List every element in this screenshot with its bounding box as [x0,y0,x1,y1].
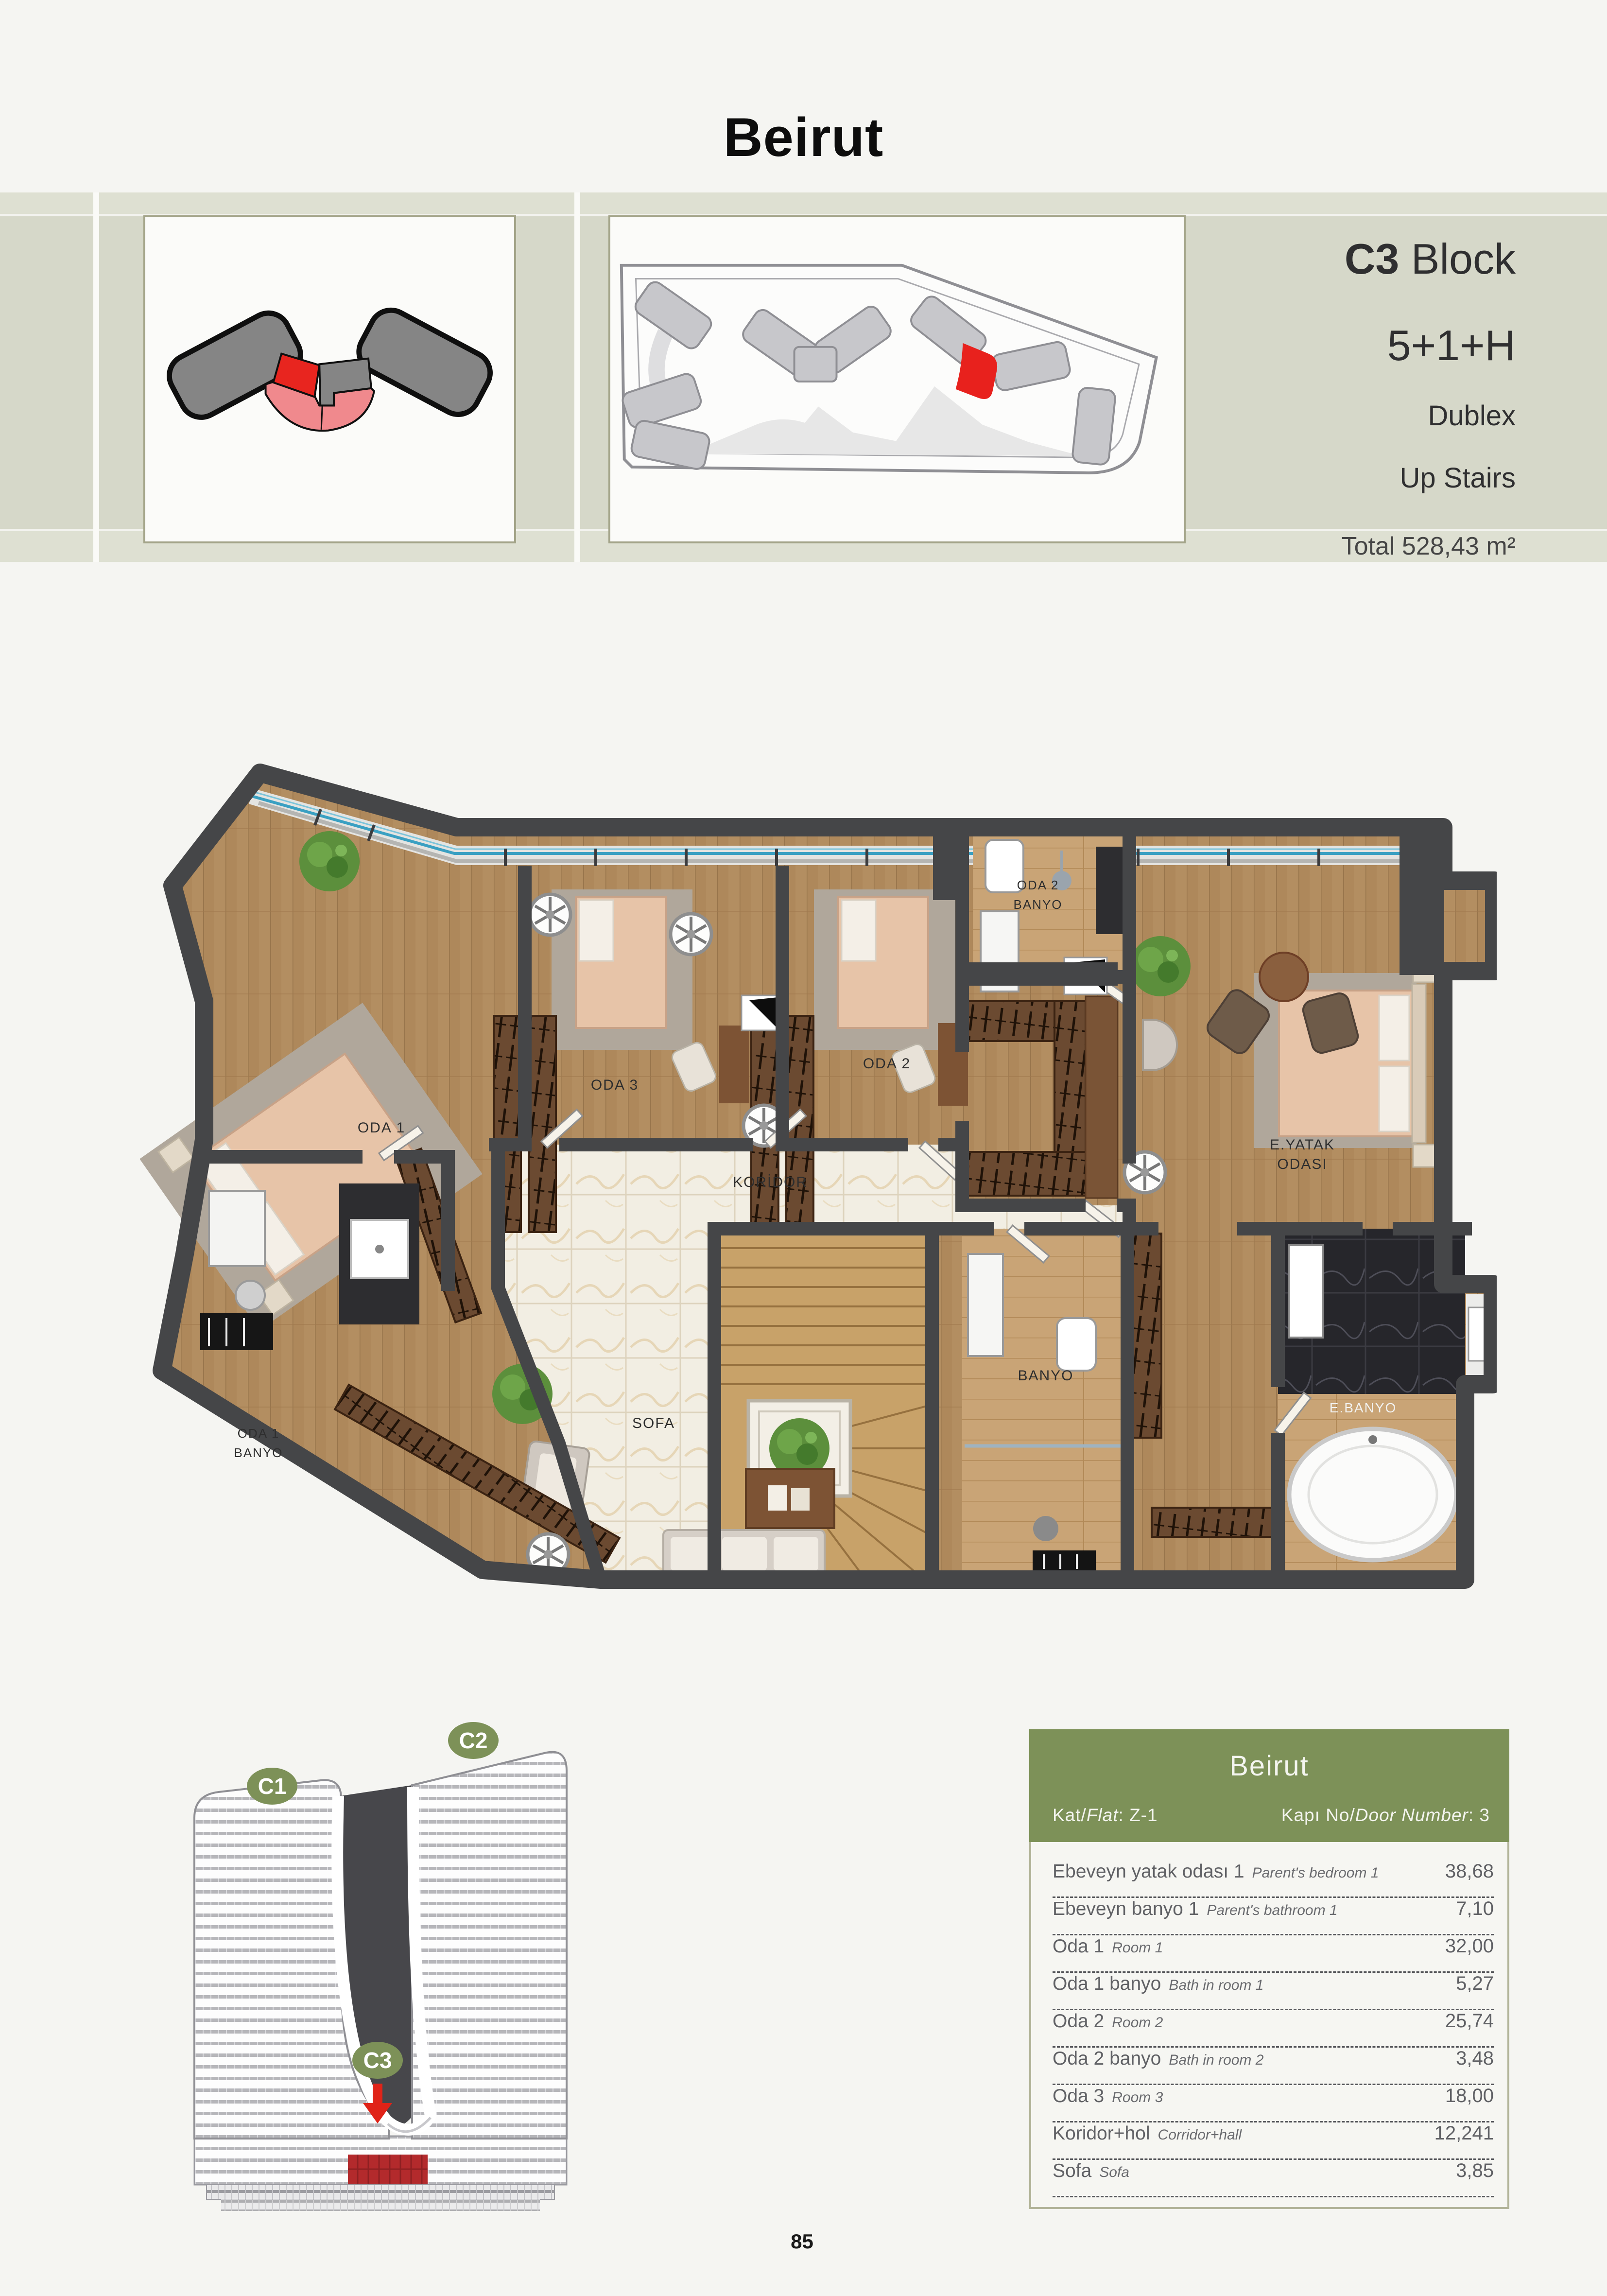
building-elevation: C1 C2 C3 [160,1650,598,2258]
svg-text:C3: C3 [363,2048,392,2073]
room-label-oda1: ODA 1 [358,1120,405,1136]
table-row: SofaSofa3,85 [1053,2160,1494,2197]
svg-text:ODASI: ODASI [1277,1156,1327,1172]
room-label-oda1-banyo: ODA 1 [238,1426,280,1441]
unit-style: Dublex [1428,400,1516,432]
door-info: Kapı No/Door Number: 3 [1281,1805,1490,1826]
room-label-ebanyo: E.BANYO [1330,1400,1397,1415]
table-row: Ebeveyn banyo 1Parent's bathroom 17,10 [1053,1898,1494,1935]
area-table: Beirut Kat/Flat: Z-1 Kapı No/Door Number… [1029,1729,1509,2209]
area-table-subheader: Kat/Flat: Z-1 Kapı No/Door Number: 3 [1053,1805,1490,1826]
room-label-sofa: SOFA [632,1415,675,1431]
flat-info: Kat/Flat: Z-1 [1053,1805,1158,1826]
table-row: Koridor+holCorridor+hall12,241 [1053,2122,1494,2160]
site-plan-diagram [610,217,1184,541]
tower-c2 [412,1752,567,2139]
block-section-panel [143,215,516,543]
block-word: Block [1399,235,1516,283]
block-name: C3 Block [1345,234,1516,284]
table-row: Oda 2 banyoBath in room 23,48 [1053,2048,1494,2085]
plant [1130,936,1191,996]
room-label-oda3: ODA 3 [591,1077,639,1093]
svg-text:BANYO: BANYO [1013,897,1062,912]
site-plan-panel [608,215,1186,543]
plant [299,831,360,891]
block-divider-line [321,405,322,429]
area-table-body: Ebeveyn yatak odası 1Parent's bedroom 13… [1029,1842,1509,2209]
ceiling-fan [671,914,711,955]
building-plinth-2 [221,2199,540,2211]
room-label-oda2: ODA 2 [863,1056,911,1072]
block-wing-right [351,303,497,422]
band-vertical-divider [574,192,580,562]
band-vertical-divider [93,192,99,562]
table-row: Ebeveyn yatak odası 1Parent's bedroom 13… [1053,1861,1494,1898]
svg-text:BANYO: BANYO [234,1445,283,1460]
unit-type: 5+1+H [1387,321,1516,370]
room-label-banyo: BANYO [1018,1368,1073,1384]
page-title: Beirut [0,106,1607,169]
header-band-top-strip [0,192,1607,214]
unit-level: Up Stairs [1400,462,1516,494]
svg-text:C1: C1 [258,1774,287,1799]
building-plinth [207,2185,554,2199]
table-row: Oda 1Room 132,00 [1053,1935,1494,1973]
block-code: C3 [1345,235,1400,283]
area-table-title: Beirut [1029,1750,1509,1782]
closet-back-panel [1086,996,1118,1198]
table-row: Oda 2Room 225,74 [1053,2010,1494,2048]
page-number: 85 [0,2230,1604,2253]
ceiling-fan [530,894,570,935]
table-row: Oda 3Room 318,00 [1053,2085,1494,2122]
unit-total-area: Total 528,43 m² [1342,532,1516,561]
room-label-eyatak: E.YATAK [1270,1137,1335,1153]
svg-text:C2: C2 [459,1728,488,1753]
block-section-diagram [145,217,514,541]
table-row: Oda 1 banyoBath in room 15,27 [1053,1973,1494,2010]
room-label-koridor: KORİDOR [733,1174,808,1190]
room-label-oda2-banyo: ODA 2 [1017,878,1059,892]
floor-plan: ODA 1 ODA 3 ODA 2 ODA 2 BANYO E.YATAK OD… [136,705,1497,1589]
area-table-header: Beirut Kat/Flat: Z-1 Kapı No/Door Number… [1029,1729,1509,1842]
